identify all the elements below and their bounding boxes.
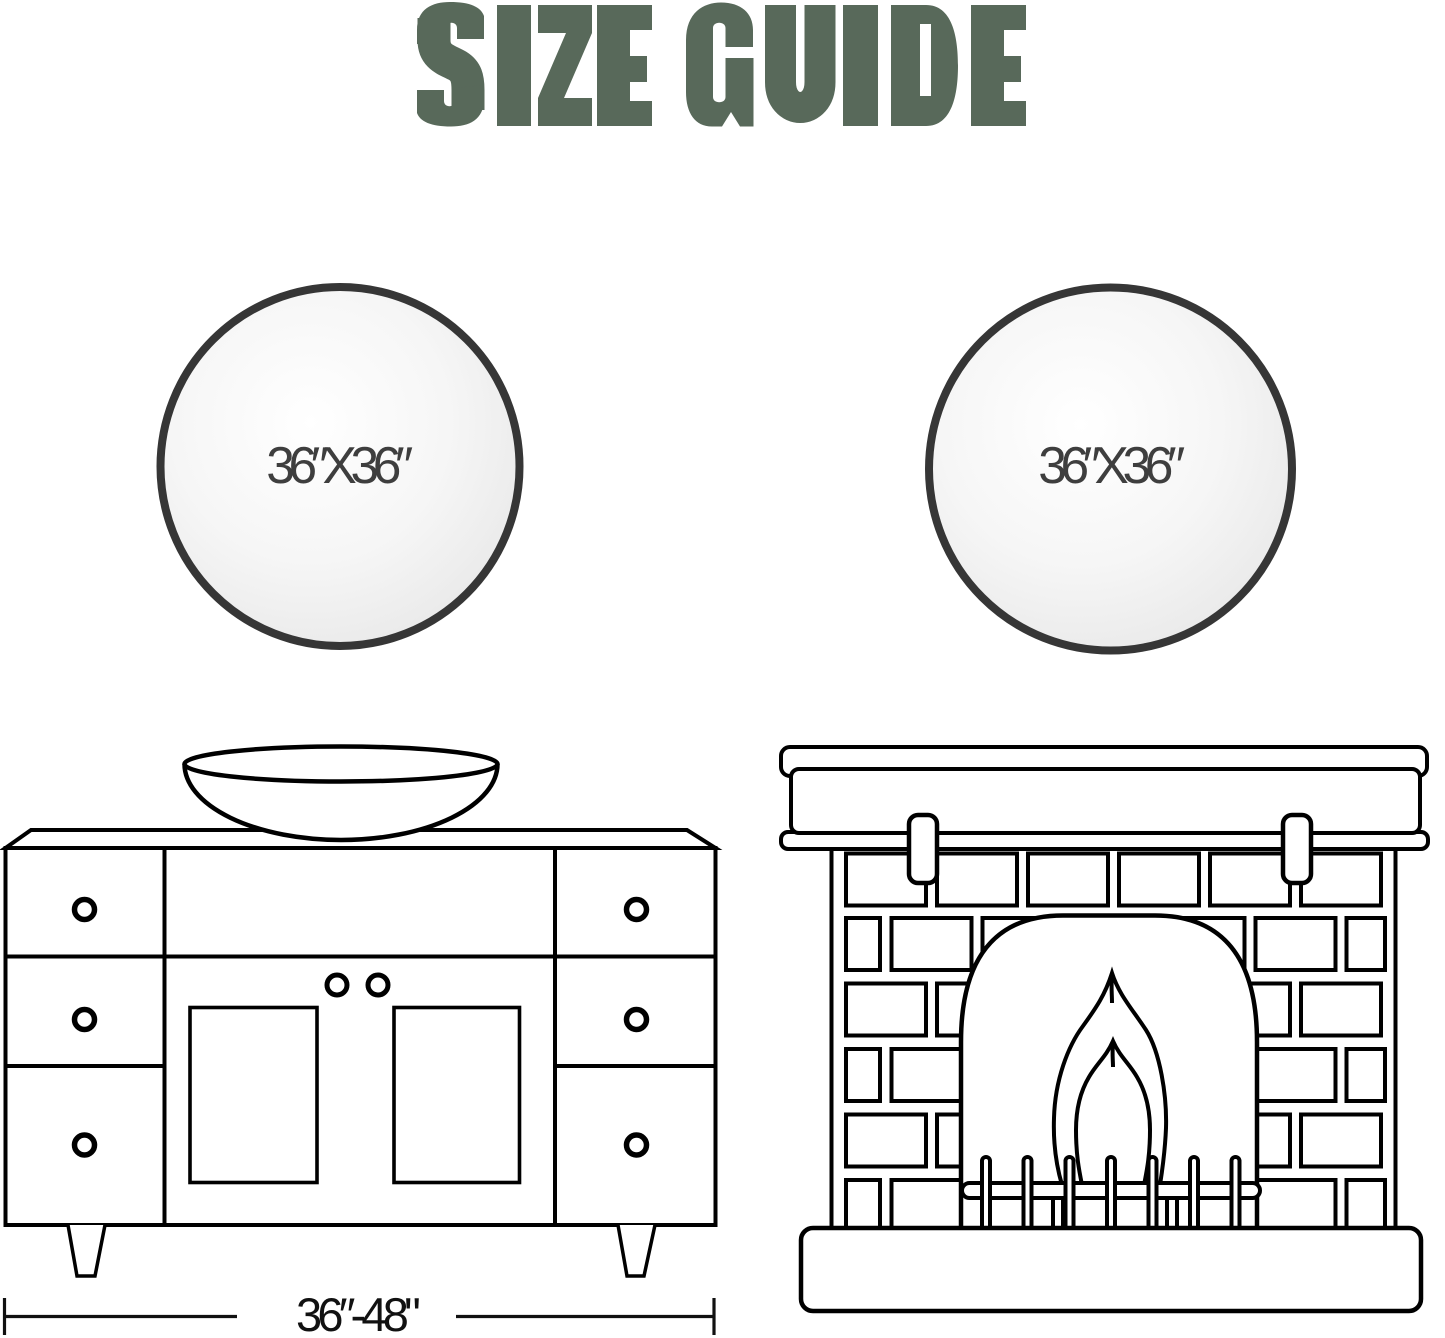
svg-text:36″X36″: 36″X36″ — [1038, 436, 1185, 494]
svg-text:36″-48": 36″-48" — [296, 1288, 419, 1338]
svg-text:36″X36″: 36″X36″ — [266, 436, 413, 494]
